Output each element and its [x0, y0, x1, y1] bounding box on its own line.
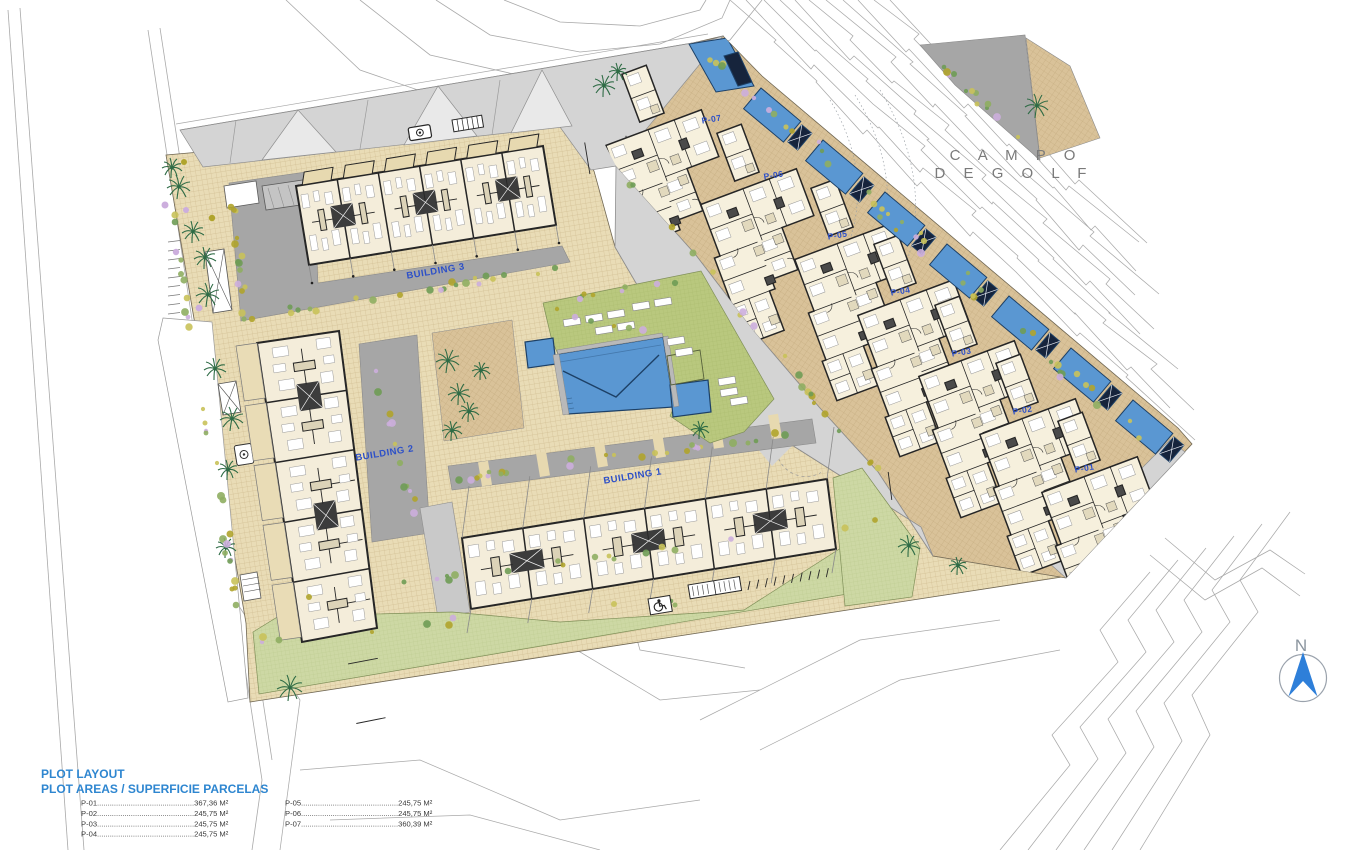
svg-text:P-05..........................: P-05....................................… — [285, 799, 433, 808]
svg-text:PLOT AREAS / SUPERFICIE PARCEL: PLOT AREAS / SUPERFICIE PARCELAS — [41, 782, 268, 796]
svg-text:D E G O L F: D E G O L F — [935, 165, 1094, 182]
svg-text:P-04..........................: P-04....................................… — [81, 830, 229, 839]
svg-text:PLOT LAYOUT: PLOT LAYOUT — [41, 767, 125, 781]
svg-text:N: N — [1295, 636, 1307, 655]
svg-text:P-01..........................: P-01....................................… — [81, 799, 229, 808]
svg-text:C A M P O: C A M P O — [950, 147, 1083, 164]
svg-text:P-02..........................: P-02....................................… — [81, 809, 229, 818]
svg-text:P-07..........................: P-07....................................… — [285, 819, 433, 828]
svg-text:P-06..........................: P-06....................................… — [285, 809, 433, 818]
svg-text:P-03..........................: P-03....................................… — [81, 819, 229, 828]
